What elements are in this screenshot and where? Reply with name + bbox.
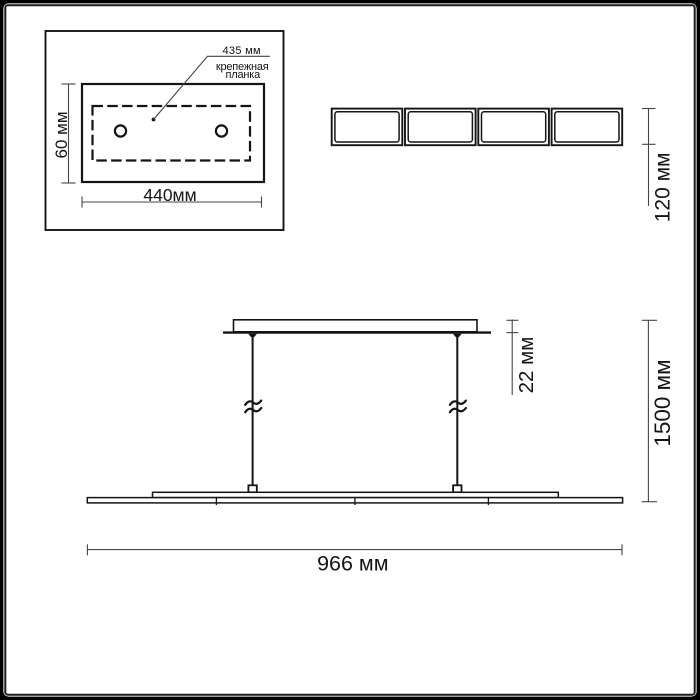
svg-text:планка: планка	[226, 69, 262, 81]
svg-text:440мм: 440мм	[143, 185, 196, 205]
svg-text:120 мм: 120 мм	[652, 153, 675, 223]
svg-text:966 мм: 966 мм	[317, 551, 388, 575]
svg-text:22 мм: 22 мм	[515, 337, 538, 394]
svg-text:1500 мм: 1500 мм	[650, 359, 675, 446]
svg-text:60 мм: 60 мм	[52, 111, 71, 158]
svg-text:435 мм: 435 мм	[223, 45, 261, 57]
